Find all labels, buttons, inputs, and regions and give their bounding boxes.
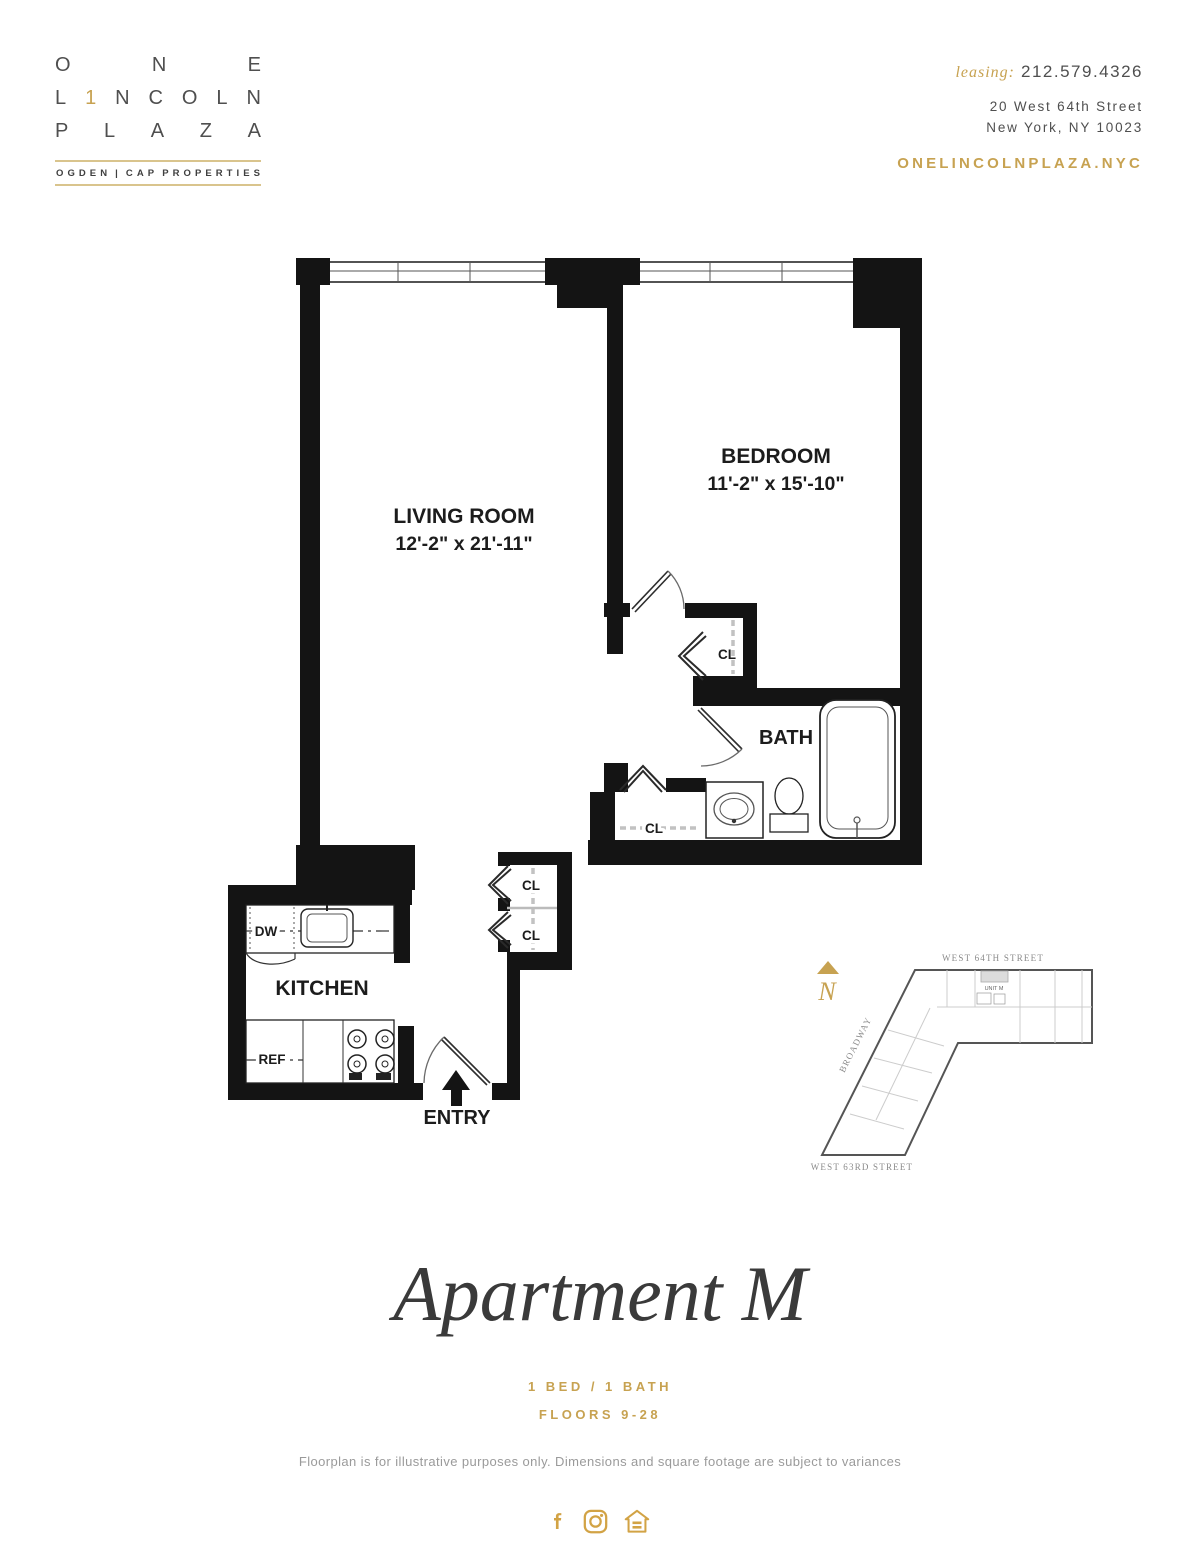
refrigerator-label: REF (259, 1052, 286, 1067)
equal-housing-icon[interactable] (622, 1508, 652, 1535)
street-top-label: WEST 64TH STREET (942, 953, 1044, 963)
entry-arrow-icon (442, 1070, 470, 1106)
bath-label: BATH (759, 727, 813, 749)
closet-label-2: CL (645, 821, 663, 836)
kitchen-sink (301, 905, 353, 947)
living-room-label: LIVING ROOM (393, 505, 534, 528)
bedroom-label: BEDROOM (721, 445, 831, 468)
closet-label-4: CL (522, 928, 540, 943)
dishwasher-label: DW (255, 924, 278, 939)
bathroom-sink (706, 782, 763, 838)
floors-subtitle: FLOORS 9-28 (0, 1407, 1200, 1422)
disclaimer-text: Floorplan is for illustrative purposes o… (0, 1454, 1200, 1469)
unit-m-label: UNIT M (985, 986, 1004, 992)
closet-label-1: CL (718, 647, 736, 662)
social-links (0, 1508, 1200, 1535)
unit-m-highlight (981, 971, 1008, 982)
north-label: N (817, 977, 837, 1006)
bed-bath-subtitle: 1 BED / 1 BATH (0, 1379, 1200, 1394)
instagram-icon[interactable] (582, 1508, 609, 1535)
street-bottom-label: WEST 63RD STREET (811, 1162, 914, 1172)
site-map: UNIT M WEST 64TH STREET WEST 63RD STREET… (811, 953, 1092, 1172)
living-room-dims: 12'-2" x 21'-11" (395, 533, 532, 555)
bedroom-dims: 11'-2" x 15'-10" (707, 473, 844, 495)
bedroom-door (632, 571, 684, 612)
toilet (770, 778, 808, 832)
north-arrow-icon: N (817, 961, 839, 1006)
bath-door (698, 708, 742, 766)
kitchen-label: KITCHEN (275, 977, 368, 1000)
closet-label-3: CL (522, 878, 540, 893)
bathtub (820, 700, 895, 838)
page-title: Apartment M (0, 1249, 1200, 1339)
entry-label: ENTRY (423, 1107, 491, 1129)
bedroom-window (640, 262, 853, 282)
facebook-icon[interactable] (549, 1508, 569, 1535)
living-room-window (330, 262, 545, 282)
stove (348, 1030, 394, 1080)
